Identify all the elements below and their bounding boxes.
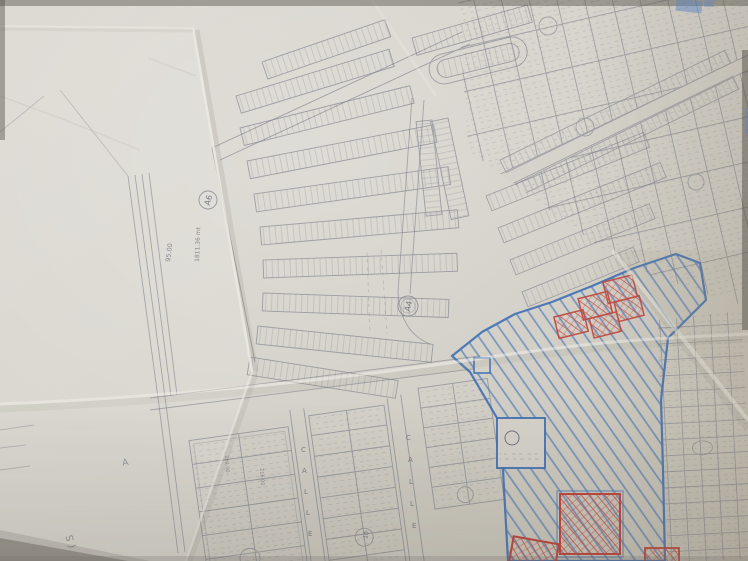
left-paper-edge [0,0,5,140]
right-paper-edge [742,50,748,330]
top-paper-edge [0,0,748,6]
map-photo-canvas: A6 A4 95.00 1811.36 mt A ( S 10 250.00 2… [0,0,748,561]
blue-ink-smudge [704,0,714,7]
photo-lighting-and-edges [0,0,748,561]
photo-of-cadastral-map: A6 A4 95.00 1811.36 mt A ( S 10 250.00 2… [0,0,748,561]
bottom-paper-edge [0,556,748,561]
